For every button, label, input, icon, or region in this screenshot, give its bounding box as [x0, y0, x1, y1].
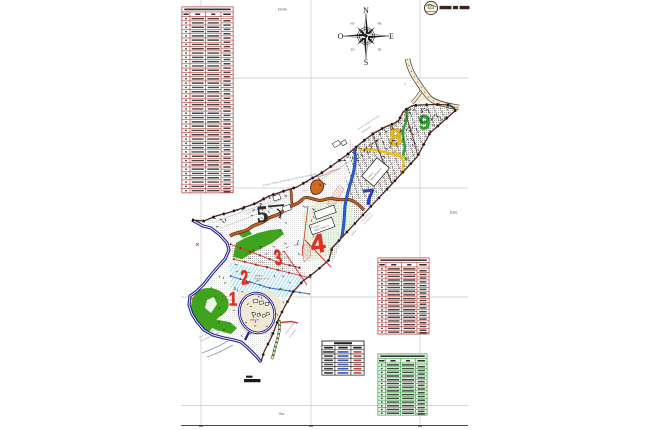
svg-text:S: S — [364, 58, 368, 67]
svg-text:LOTE 8: LOTE 8 — [351, 230, 357, 236]
svg-text:LOTE 2: LOTE 2 — [255, 276, 263, 278]
svg-text:O: O — [338, 32, 344, 41]
svg-text:9: 9 — [419, 111, 431, 135]
svg-text:E: E — [389, 32, 394, 41]
svg-text:via: via — [403, 83, 406, 86]
svg-text:NE: NE — [378, 22, 382, 26]
svg-text:AREA=41.971 m2: AREA=41.971 m2 — [255, 278, 269, 281]
svg-text:Este: Este — [450, 211, 457, 215]
svg-text:5: 5 — [256, 201, 270, 227]
svg-text:LOTE 1: LOTE 1 — [221, 297, 229, 299]
svg-text:7: 7 — [362, 184, 377, 210]
svg-text:N: N — [363, 6, 369, 15]
svg-text:SO: SO — [350, 48, 355, 52]
svg-text:NO: NO — [350, 22, 355, 26]
svg-text:SE: SE — [378, 48, 382, 52]
svg-text:AREA=35.000 m2: AREA=35.000 m2 — [221, 299, 235, 302]
svg-text:Sur: Sur — [279, 412, 285, 416]
svg-text:8: 8 — [389, 125, 402, 152]
svg-text:AREA=37.978 m2: AREA=37.978 m2 — [275, 257, 289, 260]
svg-text:LOTE 3: LOTE 3 — [275, 255, 283, 257]
svg-text:de Galeras: de Galeras — [289, 330, 297, 339]
svg-text:Norte: Norte — [278, 8, 287, 12]
